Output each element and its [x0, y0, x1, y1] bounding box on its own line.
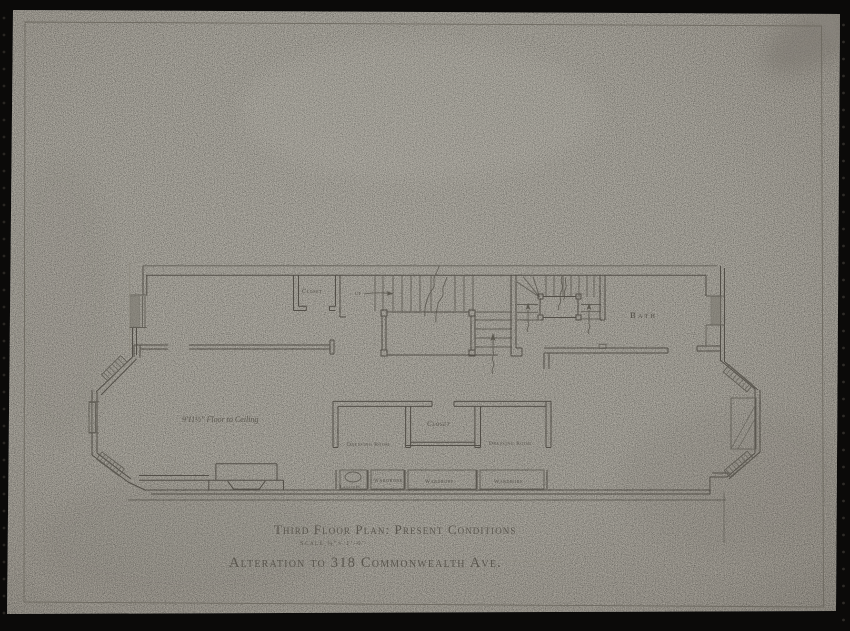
svg-text:Alteration to 318 Commonwealth: Alteration to 318 Commonwealth Ave.: [229, 555, 502, 571]
svg-text:Closet: Closet: [427, 420, 451, 428]
svg-text:Scale ¼"= 1'-0": Scale ¼"= 1'-0": [300, 540, 366, 547]
svg-text:up: up: [355, 291, 361, 297]
svg-text:Bath: Bath: [630, 310, 657, 320]
svg-text:Lavatory: Lavatory: [340, 484, 361, 489]
svg-text:Wardrobe: Wardrobe: [425, 479, 454, 485]
svg-text:Dressing Room: Dressing Room: [347, 442, 390, 448]
svg-text:Closet: Closet: [302, 289, 322, 295]
svg-text:Dressing Room: Dressing Room: [489, 441, 532, 447]
svg-text:Third Floor Plan: Present Cond: Third Floor Plan: Present Conditions: [274, 522, 517, 537]
svg-text:Wardrobe: Wardrobe: [494, 479, 523, 485]
svg-text:Wardrobe: Wardrobe: [374, 479, 403, 484]
svg-text:9'11½" Floor to Ceiling: 9'11½" Floor to Ceiling: [182, 415, 258, 424]
